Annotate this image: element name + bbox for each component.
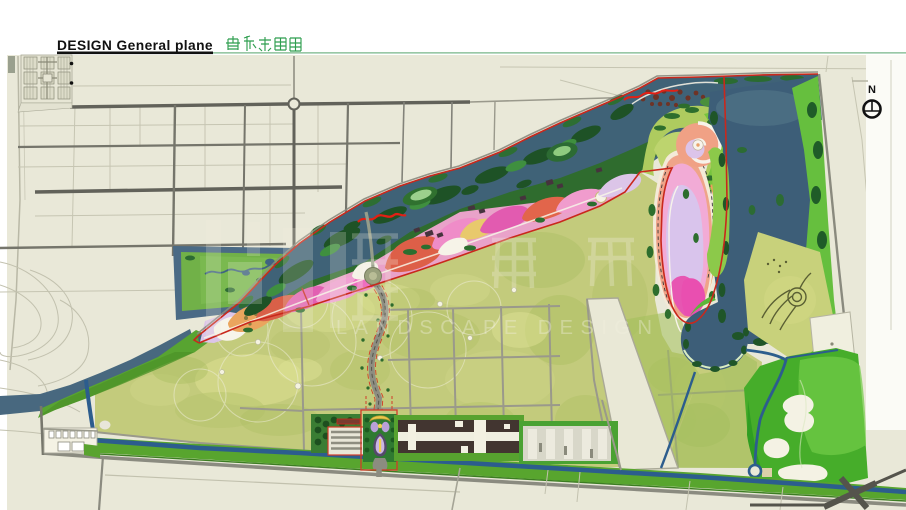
- svg-text:DESIGN General plane: DESIGN General plane: [57, 38, 213, 53]
- svg-text:N: N: [868, 84, 876, 96]
- svg-text:LANDSCAPE DESIGN: LANDSCAPE DESIGN: [336, 317, 659, 339]
